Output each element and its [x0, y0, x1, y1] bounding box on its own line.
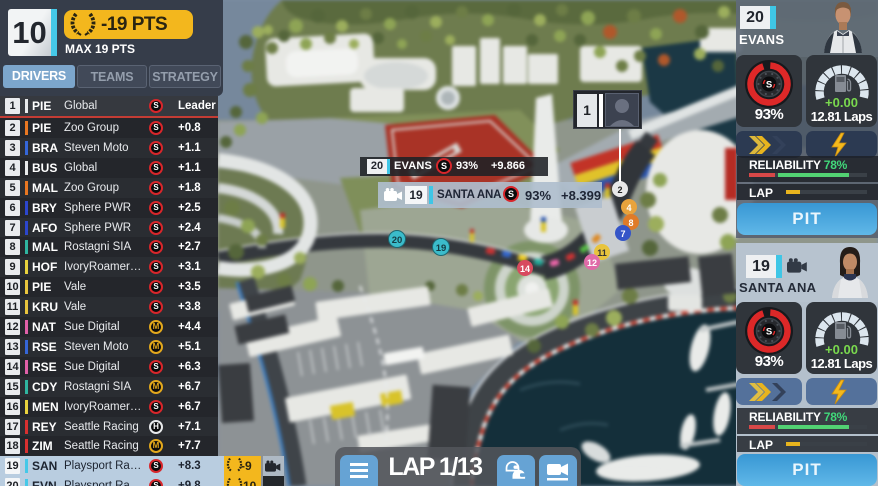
svg-text:19: 19 [436, 243, 447, 254]
svg-text:20: 20 [392, 235, 403, 246]
svg-text:12: 12 [587, 258, 597, 268]
svg-text:14: 14 [520, 264, 530, 274]
svg-text:11: 11 [597, 248, 607, 258]
svg-text:7: 7 [620, 229, 625, 239]
svg-text:4: 4 [626, 203, 631, 213]
svg-text:S: S [766, 327, 772, 338]
svg-text:S: S [766, 80, 772, 91]
svg-text:8: 8 [628, 218, 633, 228]
svg-text:2: 2 [617, 185, 622, 195]
